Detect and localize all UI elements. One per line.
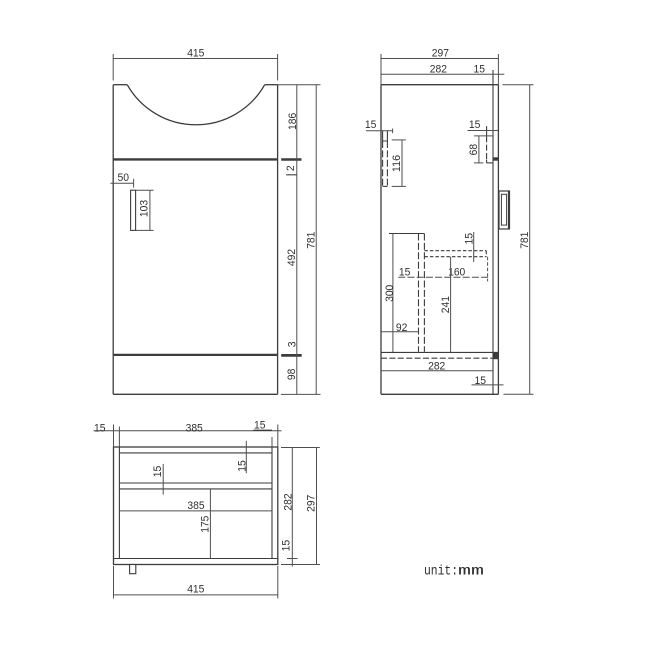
svg-text:385: 385 [187, 500, 204, 512]
svg-text:116: 116 [391, 155, 403, 172]
svg-text:15: 15 [365, 119, 377, 131]
svg-text:415: 415 [187, 48, 204, 60]
svg-text:15: 15 [469, 119, 481, 131]
svg-text:unit:: unit: [424, 564, 458, 580]
svg-text:186: 186 [287, 113, 299, 130]
svg-text:282: 282 [430, 64, 447, 76]
svg-text:282: 282 [283, 493, 295, 510]
svg-text:15: 15 [152, 466, 164, 478]
svg-text:103: 103 [139, 200, 151, 217]
svg-text:300: 300 [384, 285, 396, 302]
svg-text:415: 415 [187, 583, 204, 595]
svg-text:15: 15 [94, 422, 106, 434]
svg-text:98: 98 [286, 369, 298, 381]
svg-text:15: 15 [464, 233, 476, 245]
svg-text:92: 92 [396, 322, 408, 334]
svg-text:385: 385 [186, 422, 203, 434]
svg-text:15: 15 [237, 460, 249, 472]
svg-text:15: 15 [474, 64, 486, 76]
svg-text:492: 492 [286, 249, 298, 266]
svg-text:15: 15 [281, 540, 293, 552]
svg-text:2: 2 [285, 165, 297, 171]
svg-text:282: 282 [428, 360, 445, 372]
svg-text:mm: mm [458, 564, 484, 580]
svg-text:50: 50 [117, 172, 129, 184]
svg-text:3: 3 [287, 342, 299, 348]
svg-text:68: 68 [468, 144, 480, 156]
svg-text:297: 297 [432, 47, 449, 59]
svg-text:175: 175 [199, 516, 211, 533]
svg-text:241: 241 [440, 296, 452, 313]
svg-text:15: 15 [399, 267, 411, 279]
svg-text:297: 297 [306, 495, 318, 512]
svg-text:781: 781 [305, 232, 317, 249]
svg-text:15: 15 [474, 375, 486, 387]
svg-text:781: 781 [519, 232, 531, 249]
